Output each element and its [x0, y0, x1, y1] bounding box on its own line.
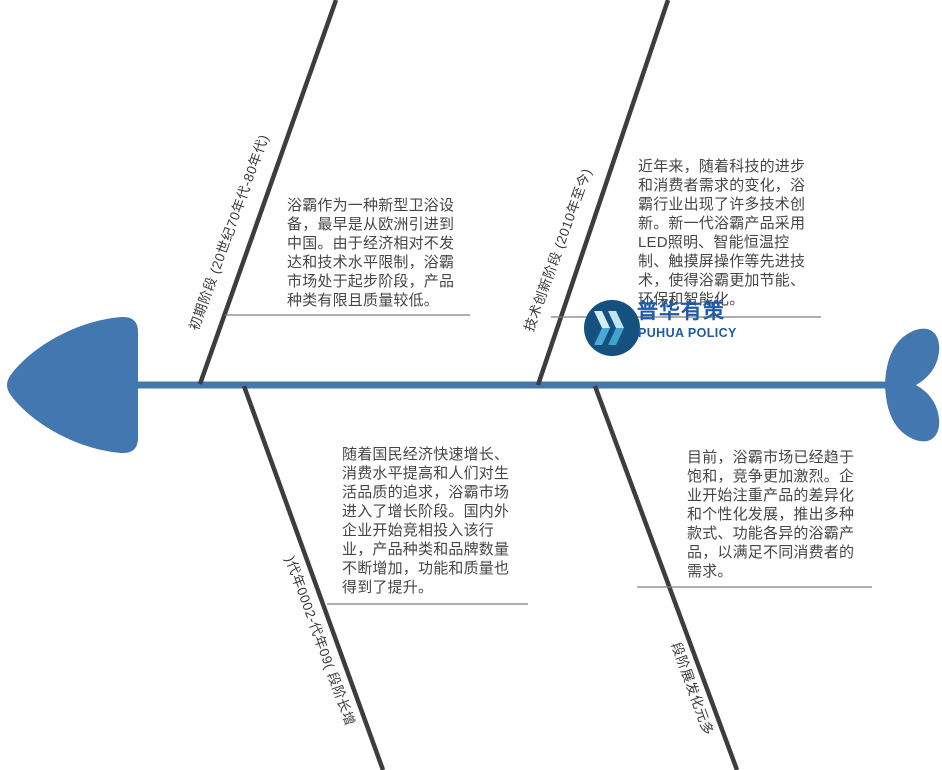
logo-mark [583, 299, 641, 359]
logo-name-chinese: 普华有策 [637, 299, 725, 325]
description-initial-stage: 浴霸作为一种新型卫浴设 备，最早是从欧洲引进到 中国。由于经济相对不发 达和技术… [287, 196, 463, 310]
fish-tail [885, 329, 939, 442]
logo-circle [584, 300, 640, 356]
puhua-policy-logo: 普华有策 PUHUA POLICY [583, 299, 883, 361]
fishbone-skeleton [0, 0, 942, 770]
bone-initial-stage [200, 0, 336, 384]
logo-name-english: PUHUA POLICY [638, 326, 737, 340]
description-growth-stage: 随着国民经济快速增长、 消费水平提高和人们对生 活品质的追求，浴霸市场 进入了增… [342, 445, 518, 597]
description-diversification-stage: 目前，浴霸市场已经趋于 饱和，竞争更加激烈。企 业开始注重产品的差异化 和个性化… [687, 448, 863, 581]
fish-head [7, 317, 138, 453]
description-tech-innovation-stage: 近年来，随着科技的进步 和消费者需求的变化，浴 霸行业出现了许多技术创 新。新一… [638, 157, 820, 309]
fishbone-diagram: 浴霸作为一种新型卫浴设 备，最早是从欧洲引进到 中国。由于经济相对不发 达和技术… [0, 0, 942, 770]
